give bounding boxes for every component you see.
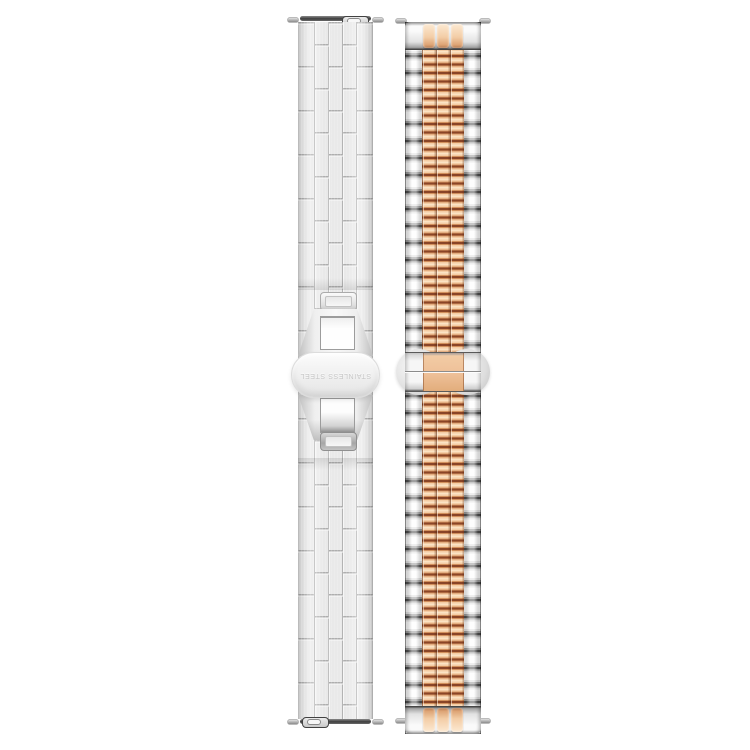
- spring-bar-pin-top-left: [288, 18, 298, 22]
- end-link-tab: [451, 708, 463, 732]
- end-link-tab: [451, 24, 463, 48]
- end-link-tab: [437, 708, 449, 732]
- end-link-tab: [423, 708, 435, 732]
- end-link-top: [405, 22, 481, 50]
- clasp-engraving: STAINLESS STEEL: [300, 372, 371, 379]
- spring-bar-pin-bottom-right: [373, 720, 383, 724]
- clasp-button-recess: [325, 436, 352, 447]
- clasp-button-recess: [325, 296, 352, 307]
- quick-release-knob: [308, 720, 320, 724]
- spring-bar-pin-bottom-right: [480, 719, 490, 723]
- clasp-window-bottom: [320, 398, 355, 433]
- product-photo: STAINLESS STEEL: [0, 0, 750, 750]
- clasp-window-top: [320, 316, 355, 350]
- end-link-bottom: [405, 706, 481, 734]
- spring-bar-pin-top-right: [373, 18, 383, 22]
- clasp-seam: [405, 371, 481, 373]
- fold-over-clasp-plate: [405, 352, 481, 392]
- spring-bar-pin-top-right: [480, 19, 490, 23]
- end-link-tab: [437, 24, 449, 48]
- clasp-cover-plate: STAINLESS STEEL: [291, 352, 380, 398]
- spring-bar-pin-bottom-left: [288, 720, 298, 724]
- end-link-tab: [423, 24, 435, 48]
- clasp-release-button-top: [320, 292, 357, 311]
- clasp-release-button-bottom: [320, 432, 357, 451]
- quick-release-tab-bottom: [302, 717, 329, 728]
- silver-link-band: STAINLESS STEEL: [298, 16, 373, 731]
- butterfly-clasp: STAINLESS STEEL: [291, 288, 380, 474]
- two-tone-jubilee-band: [405, 16, 481, 731]
